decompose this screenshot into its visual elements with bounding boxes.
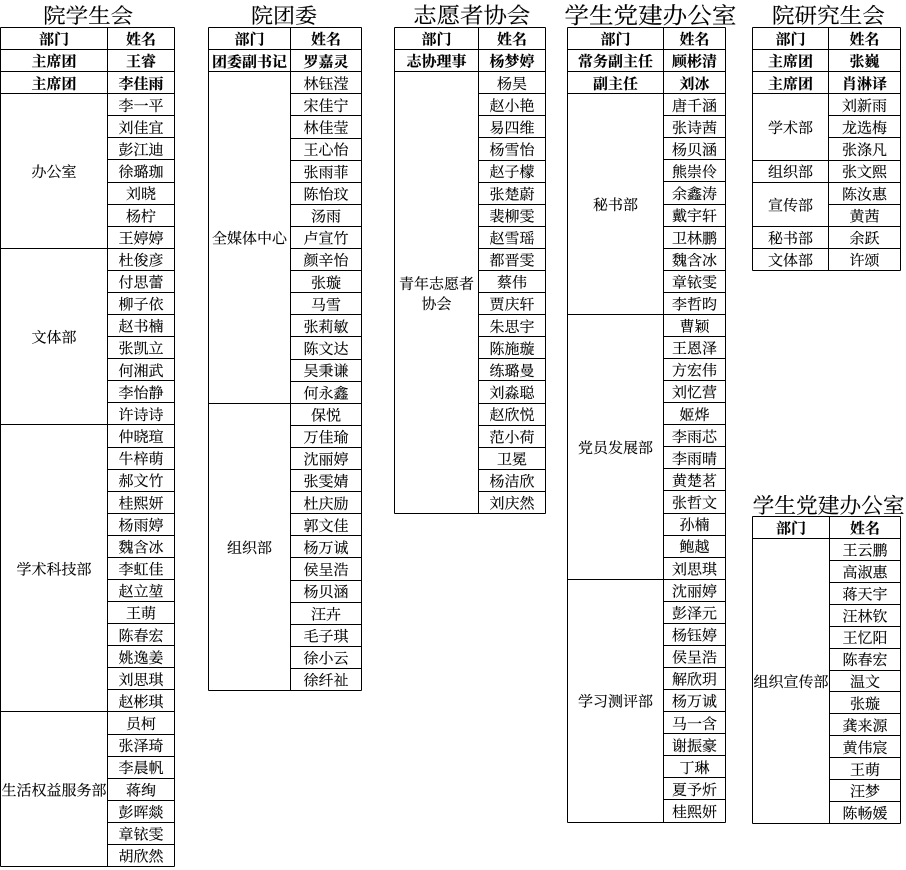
svg-text:刘淼聪: 刘淼聪 (489, 382, 535, 403)
svg-text:李佳雨: 李佳雨 (118, 73, 163, 94)
svg-text:彭晖燚: 彭晖燚 (118, 801, 163, 822)
svg-text:组织宣传部: 组织宣传部 (753, 671, 828, 692)
svg-text:常务副主任: 常务副主任 (578, 51, 653, 72)
svg-text:刘忆营: 刘忆营 (672, 382, 717, 403)
svg-text:张凯立: 张凯立 (118, 338, 163, 359)
svg-text:赵子檬: 赵子檬 (489, 161, 534, 182)
svg-text:陈汝惠: 陈汝惠 (842, 183, 888, 204)
svg-text:刘庆然: 刘庆然 (489, 493, 535, 514)
svg-text:姓名: 姓名 (679, 29, 709, 50)
svg-text:章铱雯: 章铱雯 (118, 824, 163, 845)
svg-text:陈文达: 陈文达 (303, 338, 348, 359)
svg-text:部门: 部门 (775, 29, 805, 50)
svg-text:侯呈浩: 侯呈浩 (672, 647, 717, 668)
svg-text:徐璐珈: 徐璐珈 (118, 161, 163, 182)
svg-text:王忆阳: 王忆阳 (842, 627, 887, 648)
svg-text:杨万诚: 杨万诚 (303, 537, 348, 558)
svg-text:副主任: 副主任 (593, 73, 638, 94)
svg-text:张诗茜: 张诗茜 (672, 117, 717, 138)
svg-text:桂熙妍: 桂熙妍 (672, 801, 717, 822)
svg-text:杨雨婷: 杨雨婷 (118, 514, 163, 535)
svg-text:志协理事: 志协理事 (406, 51, 466, 72)
svg-text:张涤凡: 张涤凡 (842, 139, 887, 160)
svg-text:张哲文: 张哲文 (672, 492, 717, 513)
svg-text:生活权益服务部: 生活权益服务部 (1, 779, 106, 800)
svg-text:姓名: 姓名 (497, 29, 527, 50)
svg-text:何永鑫: 何永鑫 (303, 382, 348, 403)
svg-text:办公室: 办公室 (31, 161, 76, 182)
svg-text:赵立堃: 赵立堃 (118, 581, 163, 602)
svg-text:沈丽婷: 沈丽婷 (672, 580, 717, 601)
svg-text:李雨芯: 李雨芯 (672, 426, 718, 447)
svg-text:卫林鹏: 卫林鹏 (672, 227, 717, 248)
svg-text:李雨晴: 李雨晴 (672, 448, 717, 469)
svg-text:丁琳: 丁琳 (679, 757, 709, 778)
svg-text:谢振豪: 谢振豪 (672, 735, 717, 756)
svg-text:李晨帆: 李晨帆 (118, 757, 163, 778)
svg-text:刘晓: 刘晓 (126, 183, 156, 204)
svg-text:杨万诚: 杨万诚 (672, 691, 717, 712)
svg-text:龚来源: 龚来源 (842, 715, 888, 736)
svg-text:宋佳宁: 宋佳宁 (303, 95, 348, 116)
svg-text:练璐曼: 练璐曼 (489, 360, 534, 381)
svg-text:院团委: 院团委 (251, 0, 317, 30)
svg-text:蒋天宇: 蒋天宇 (842, 583, 887, 604)
svg-text:贾庆轩: 贾庆轩 (489, 294, 534, 315)
svg-text:主席团: 主席团 (768, 51, 813, 72)
svg-text:夏予炘: 夏予炘 (672, 779, 717, 800)
svg-text:王睿: 王睿 (126, 51, 156, 72)
svg-text:汪卉: 汪卉 (311, 603, 341, 624)
svg-text:张文熙: 张文熙 (842, 161, 888, 182)
svg-text:卫冕: 卫冕 (497, 448, 527, 469)
svg-text:协会: 协会 (421, 293, 451, 314)
svg-text:赵小艳: 赵小艳 (489, 95, 534, 116)
svg-text:吴秉谦: 吴秉谦 (303, 360, 348, 381)
svg-text:刘佳宜: 刘佳宜 (118, 117, 163, 138)
svg-text:学生党建办公室: 学生党建办公室 (753, 489, 905, 520)
svg-text:许诗诗: 许诗诗 (118, 404, 163, 425)
svg-text:部门: 部门 (39, 29, 69, 50)
svg-text:姓名: 姓名 (849, 29, 879, 50)
svg-text:杨昊: 杨昊 (497, 73, 527, 94)
svg-text:张泽琦: 张泽琦 (118, 735, 163, 756)
svg-text:汪梦: 汪梦 (850, 781, 880, 802)
svg-text:秘书部: 秘书部 (593, 194, 638, 215)
svg-text:部门: 部门 (776, 518, 806, 539)
svg-text:陈施璇: 陈施璇 (489, 338, 534, 359)
svg-text:朱思宇: 朱思宇 (489, 316, 534, 337)
svg-text:学生党建办公室: 学生党建办公室 (564, 0, 736, 31)
svg-text:组织部: 组织部 (227, 537, 272, 558)
svg-text:全媒体中心: 全媒体中心 (212, 228, 288, 249)
svg-text:张巍: 张巍 (849, 51, 879, 72)
svg-text:陈春宏: 陈春宏 (118, 625, 163, 646)
svg-text:黄茜: 黄茜 (849, 205, 879, 226)
svg-text:万佳瑜: 万佳瑜 (303, 427, 348, 448)
svg-text:保悦: 保悦 (311, 404, 341, 425)
svg-text:组织部: 组织部 (768, 161, 813, 182)
svg-text:赵欣悦: 赵欣悦 (489, 404, 534, 425)
svg-text:高淑惠: 高淑惠 (842, 561, 888, 582)
svg-text:方宏伟: 方宏伟 (672, 360, 717, 381)
svg-text:何湘武: 何湘武 (118, 360, 163, 381)
svg-text:部门: 部门 (421, 29, 451, 50)
svg-text:主席团: 主席团 (768, 73, 813, 94)
svg-text:颜辛怡: 颜辛怡 (303, 250, 349, 271)
svg-text:陈春宏: 陈春宏 (842, 649, 887, 670)
svg-text:彭泽元: 彭泽元 (672, 602, 717, 623)
svg-text:顾彬清: 顾彬清 (672, 51, 717, 72)
svg-text:徐纤祉: 徐纤祉 (303, 670, 348, 691)
svg-text:姓名: 姓名 (126, 29, 156, 50)
svg-text:都晋雯: 都晋雯 (489, 250, 534, 271)
svg-text:陈畅媛: 陈畅媛 (842, 803, 887, 824)
svg-text:孙楠: 孙楠 (679, 514, 709, 535)
svg-text:魏含冰: 魏含冰 (118, 537, 163, 558)
svg-text:宣传部: 宣传部 (768, 194, 813, 215)
svg-text:徐小云: 徐小云 (303, 648, 348, 669)
svg-text:员柯: 员柯 (126, 713, 156, 734)
svg-text:部门: 部门 (600, 29, 630, 50)
svg-text:王恩泽: 王恩泽 (672, 338, 717, 359)
svg-text:张雯婧: 张雯婧 (303, 471, 348, 492)
svg-text:戴宇轩: 戴宇轩 (672, 205, 717, 226)
svg-text:学习测评部: 学习测评部 (578, 691, 653, 712)
svg-text:曹颖: 曹颖 (679, 316, 710, 337)
svg-text:龙选梅: 龙选梅 (842, 117, 887, 138)
svg-text:马雪: 马雪 (311, 294, 341, 315)
svg-text:林佳莹: 林佳莹 (303, 117, 348, 138)
svg-text:杨钰婷: 杨钰婷 (672, 625, 717, 646)
svg-text:汤雨: 汤雨 (311, 206, 341, 227)
svg-text:文体部: 文体部 (31, 327, 76, 348)
svg-text:牛梓萌: 牛梓萌 (118, 448, 163, 469)
svg-text:蒋绚: 蒋绚 (126, 779, 156, 800)
svg-text:马一含: 马一含 (672, 713, 717, 734)
svg-text:张雨菲: 张雨菲 (303, 161, 348, 182)
svg-text:李怡静: 李怡静 (118, 382, 163, 403)
svg-text:王萌: 王萌 (126, 603, 156, 624)
svg-text:王心怡: 王心怡 (303, 139, 349, 160)
svg-text:许颂: 许颂 (849, 250, 879, 271)
svg-text:魏含冰: 魏含冰 (672, 249, 717, 270)
svg-text:杜俊彦: 杜俊彦 (118, 249, 163, 270)
svg-text:团委副书记: 团委副书记 (212, 51, 287, 72)
svg-text:付思蕾: 付思蕾 (118, 272, 163, 293)
svg-text:杜庆励: 杜庆励 (303, 493, 348, 514)
svg-text:卢宣竹: 卢宣竹 (303, 228, 348, 249)
svg-text:杨雪怡: 杨雪怡 (489, 139, 535, 160)
svg-text:刘冰: 刘冰 (679, 73, 709, 94)
svg-text:姓名: 姓名 (850, 518, 880, 539)
svg-text:党员发展部: 党员发展部 (578, 437, 653, 458)
svg-text:章铱雯: 章铱雯 (672, 271, 717, 292)
svg-text:院学生会: 院学生会 (43, 0, 133, 30)
svg-text:部门: 部门 (234, 29, 264, 50)
svg-text:罗嘉灵: 罗嘉灵 (303, 51, 348, 72)
svg-text:侯呈浩: 侯呈浩 (303, 559, 348, 580)
svg-text:李虹佳: 李虹佳 (118, 559, 163, 580)
svg-text:李哲昀: 李哲昀 (672, 294, 717, 315)
svg-text:青年志愿者: 青年志愿者 (399, 273, 474, 294)
svg-text:院研究生会: 院研究生会 (772, 0, 885, 30)
svg-text:柳子依: 柳子依 (118, 294, 163, 315)
svg-text:林钰滢: 林钰滢 (303, 73, 348, 94)
svg-text:余鑫涛: 余鑫涛 (672, 183, 717, 204)
svg-text:温文: 温文 (850, 671, 880, 692)
svg-text:余跃: 余跃 (849, 228, 879, 249)
svg-text:李一平: 李一平 (118, 95, 163, 116)
svg-text:张璇: 张璇 (311, 272, 341, 293)
svg-text:张璇: 张璇 (850, 693, 880, 714)
svg-text:陈怡玟: 陈怡玟 (303, 183, 348, 204)
svg-text:郝文竹: 郝文竹 (118, 470, 163, 491)
svg-text:张楚蔚: 张楚蔚 (489, 183, 534, 204)
svg-text:姚逸姜: 姚逸姜 (118, 647, 163, 668)
svg-text:姬烨: 姬烨 (679, 404, 709, 425)
svg-text:彭江迪: 彭江迪 (118, 139, 163, 160)
svg-text:杨梦婷: 杨梦婷 (489, 51, 534, 72)
svg-text:王婷婷: 王婷婷 (118, 227, 163, 248)
svg-text:学术部: 学术部 (768, 117, 813, 138)
svg-text:唐千涵: 唐千涵 (672, 95, 717, 116)
svg-text:赵书楠: 赵书楠 (118, 316, 163, 337)
svg-text:杨柠: 杨柠 (126, 205, 156, 226)
svg-text:范小荷: 范小荷 (489, 426, 534, 447)
svg-text:主席团: 主席团 (31, 73, 76, 94)
svg-text:蔡伟: 蔡伟 (497, 272, 527, 293)
svg-text:张莉敏: 张莉敏 (303, 316, 348, 337)
svg-text:易四维: 易四维 (489, 117, 534, 138)
svg-text:刘新雨: 刘新雨 (842, 95, 887, 116)
svg-text:沈丽婷: 沈丽婷 (303, 449, 348, 470)
svg-text:黄伟宸: 黄伟宸 (842, 737, 887, 758)
svg-text:主席团: 主席团 (31, 51, 76, 72)
svg-text:汪林钦: 汪林钦 (842, 605, 887, 626)
svg-text:姓名: 姓名 (311, 29, 341, 50)
svg-text:赵彬琪: 赵彬琪 (118, 691, 164, 712)
svg-text:王萌: 王萌 (850, 759, 880, 780)
svg-text:毛子琪: 毛子琪 (303, 625, 349, 646)
svg-text:胡欣然: 胡欣然 (118, 846, 164, 867)
svg-text:杨贝涵: 杨贝涵 (303, 581, 348, 602)
svg-text:郭文佳: 郭文佳 (303, 515, 348, 536)
svg-text:志愿者协会: 志愿者协会 (413, 0, 530, 30)
svg-text:黄楚茗: 黄楚茗 (672, 470, 717, 491)
svg-text:熊崇伶: 熊崇伶 (672, 161, 717, 182)
svg-text:学术科技部: 学术科技部 (16, 559, 91, 580)
svg-text:刘思琪: 刘思琪 (672, 558, 718, 579)
svg-text:杨洁欣: 杨洁欣 (489, 471, 534, 492)
svg-text:王云鹏: 王云鹏 (842, 540, 887, 561)
svg-text:仲晓瑄: 仲晓瑄 (118, 426, 163, 447)
svg-text:裴柳雯: 裴柳雯 (489, 205, 534, 226)
svg-text:赵雪瑶: 赵雪瑶 (489, 228, 534, 249)
svg-text:杨贝涵: 杨贝涵 (672, 139, 717, 160)
svg-text:鲍越: 鲍越 (679, 536, 709, 557)
svg-text:解欣玥: 解欣玥 (672, 669, 717, 690)
svg-text:秘书部: 秘书部 (768, 228, 813, 249)
svg-text:肖淋译: 肖淋译 (842, 73, 887, 94)
svg-text:文体部: 文体部 (768, 250, 813, 271)
svg-text:桂熙妍: 桂熙妍 (118, 492, 163, 513)
svg-text:刘思琪: 刘思琪 (118, 669, 164, 690)
